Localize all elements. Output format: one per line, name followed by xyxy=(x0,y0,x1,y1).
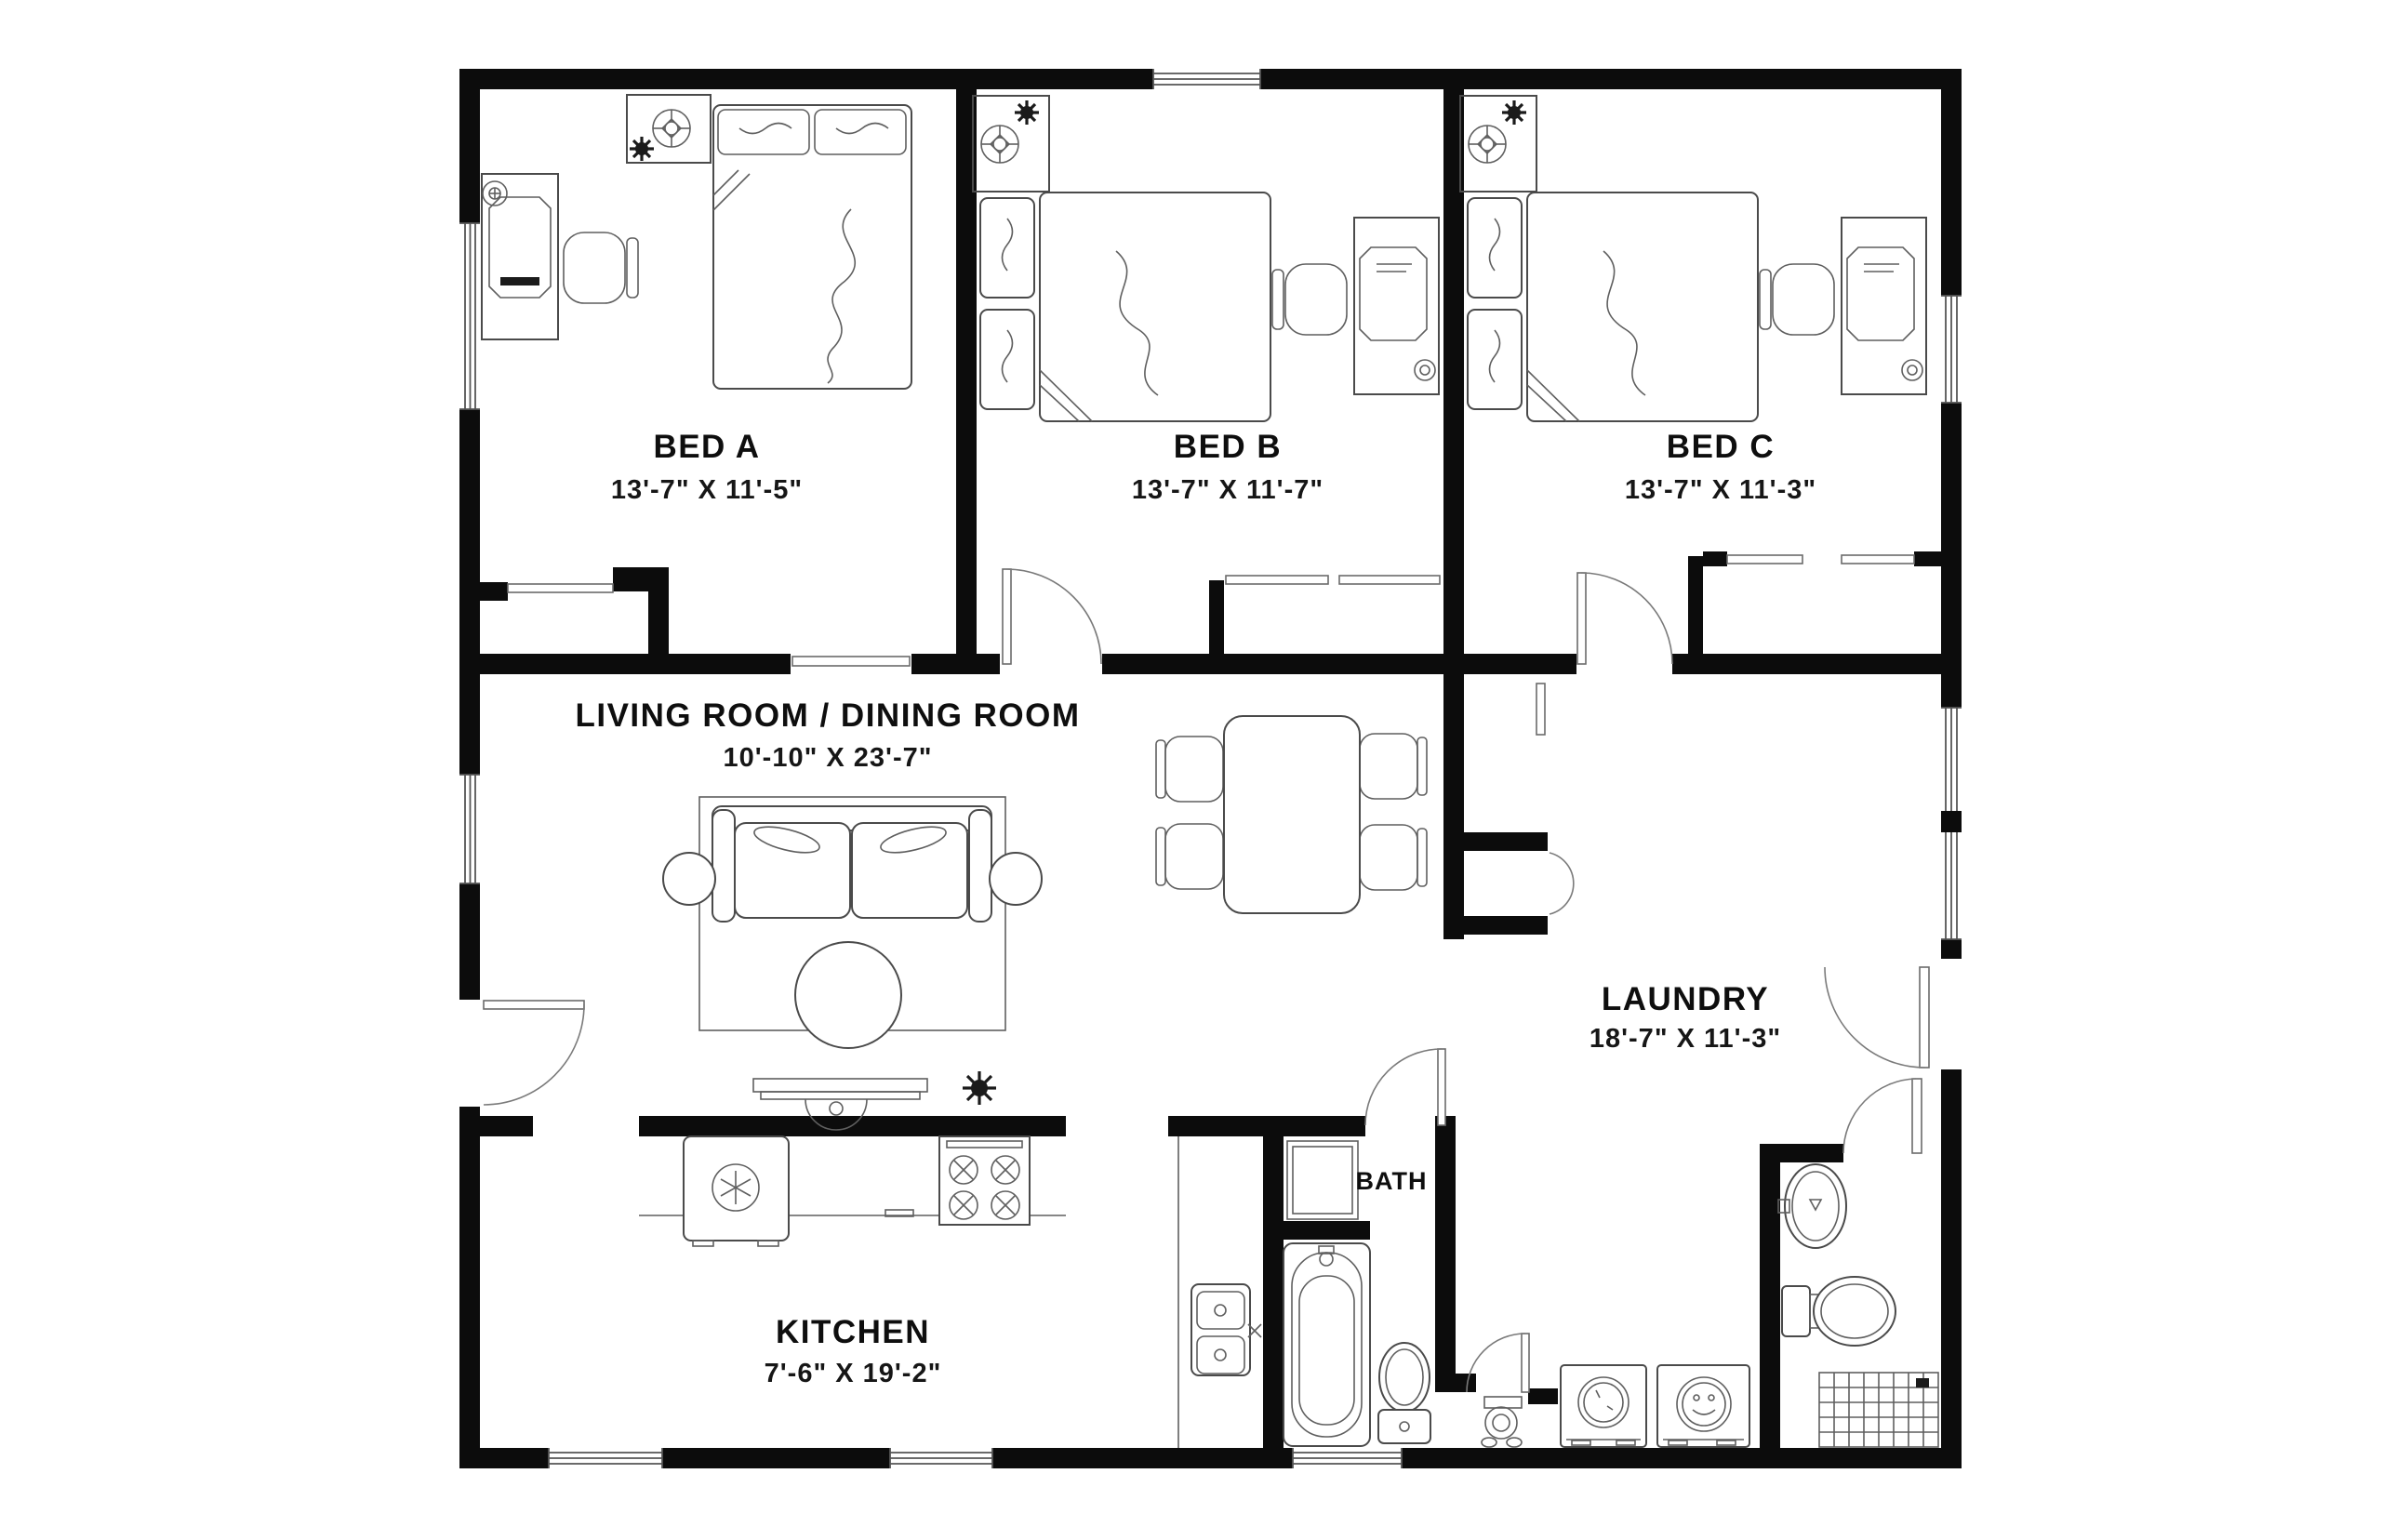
doors xyxy=(484,555,1929,1392)
laundry-bath-door-swing xyxy=(1843,1079,1922,1153)
toilet-icon xyxy=(1782,1277,1895,1346)
dining-chair xyxy=(1360,825,1427,890)
ceiling-fan-icon xyxy=(653,110,690,147)
closet-slider xyxy=(1727,555,1802,564)
washer-icon xyxy=(1561,1365,1646,1447)
pedestal-sink-icon xyxy=(1482,1397,1522,1447)
bath-door-swing xyxy=(1365,1049,1445,1125)
room-label-bed-c: BED C xyxy=(1667,429,1775,465)
room-dims-living: 10'-10" X 23'-7" xyxy=(724,743,933,773)
refrigerator-icon xyxy=(684,1136,789,1246)
laundry-bathroom-fixtures xyxy=(1778,1164,1938,1447)
side-table xyxy=(990,853,1042,905)
tiled-shower xyxy=(1819,1373,1938,1447)
pillow xyxy=(1468,310,1522,409)
shower-drain xyxy=(1916,1378,1929,1387)
bed-c-door-swing xyxy=(1577,573,1672,664)
tv-icon xyxy=(1360,247,1427,340)
room-label-bed-a: BED A xyxy=(653,429,760,465)
window-icon xyxy=(549,1448,662,1468)
window-icon xyxy=(459,775,480,883)
sofa xyxy=(712,806,991,922)
plant-icon xyxy=(1502,100,1526,125)
kitchen-fixtures xyxy=(639,1136,1261,1448)
plant-icon xyxy=(1015,100,1039,125)
laundry-fixtures xyxy=(1561,1365,1749,1447)
room-dims-bed-c: 13'-7" X 11'-3" xyxy=(1625,475,1816,505)
plant-icon xyxy=(630,137,654,161)
hall-closet-door-swing xyxy=(1550,853,1574,914)
dryer-icon xyxy=(1657,1365,1749,1447)
bed-a-sliding-door xyxy=(792,657,910,666)
plant-icon xyxy=(963,1071,996,1105)
window-icon xyxy=(890,1448,992,1468)
closet-slider xyxy=(1339,576,1440,584)
bed xyxy=(713,105,911,389)
pillow xyxy=(980,198,1034,298)
bathtub-icon xyxy=(1284,1243,1370,1446)
pillow xyxy=(980,310,1034,409)
bed xyxy=(1468,192,1758,421)
room-dims-bed-a: 13'-7" X 11'-5" xyxy=(611,475,803,505)
closet-slider xyxy=(1226,576,1328,584)
window-icon xyxy=(1153,69,1260,89)
window-icon xyxy=(459,223,480,409)
dining-set xyxy=(1156,716,1427,913)
back-door-swing xyxy=(1825,967,1929,1068)
closet-slider xyxy=(508,584,613,592)
window-icon xyxy=(1941,708,1962,811)
room-label-laundry: LAUNDRY xyxy=(1602,981,1769,1017)
room-label-living: LIVING ROOM / DINING ROOM xyxy=(575,697,1080,734)
room-label-kitchen: KITCHEN xyxy=(776,1314,930,1350)
ceiling-fan-icon xyxy=(981,126,1018,163)
entry-door-swing xyxy=(484,1001,584,1105)
bed xyxy=(980,192,1270,421)
room-label-bed-b: BED B xyxy=(1174,429,1282,465)
closet-slider xyxy=(1842,555,1914,564)
window-icon xyxy=(1941,832,1962,939)
tv-icon xyxy=(1847,247,1914,340)
pillow xyxy=(1468,198,1522,298)
ottoman xyxy=(795,942,901,1048)
dining-table xyxy=(1224,716,1360,913)
mug-icon xyxy=(1902,360,1922,380)
bed-b-door-swing xyxy=(1003,569,1101,664)
oval-sink-icon xyxy=(1778,1164,1846,1248)
bed-c-furniture xyxy=(1460,96,1926,421)
floor-plan: BED A 13'-7" X 11'-5" BED B 13'-7" X 11'… xyxy=(0,0,2381,1540)
living-room-furniture xyxy=(663,716,1427,1130)
mug-icon xyxy=(1415,360,1435,380)
kitchen-sink-icon xyxy=(1191,1284,1261,1375)
dining-chair xyxy=(1156,824,1223,889)
room-dims-laundry: 18'-7" X 11'-3" xyxy=(1590,1024,1781,1054)
chair xyxy=(1272,264,1347,335)
powder-door-swing xyxy=(1467,1334,1529,1392)
closet-slider xyxy=(1536,684,1545,735)
toilet-icon xyxy=(1378,1343,1430,1443)
side-table xyxy=(663,853,715,905)
bed-b-furniture xyxy=(973,96,1439,421)
dining-chair xyxy=(1360,734,1427,799)
room-label-bath: BATH xyxy=(1356,1167,1428,1195)
tv-icon xyxy=(489,197,551,298)
chair xyxy=(564,232,638,303)
chair xyxy=(1760,264,1834,335)
floor-plan-svg: BED A 13'-7" X 11'-5" BED B 13'-7" X 11'… xyxy=(0,0,2381,1540)
dining-chair xyxy=(1156,737,1223,802)
room-dims-kitchen: 7'-6" X 19'-2" xyxy=(765,1359,942,1388)
window-icon xyxy=(1941,296,1962,403)
ceiling-fan-icon xyxy=(1469,126,1506,163)
window-icon xyxy=(1293,1448,1402,1468)
bed-a-furniture xyxy=(482,95,911,389)
shower-stall xyxy=(1287,1141,1358,1219)
room-dims-bed-b: 13'-7" X 11'-7" xyxy=(1132,475,1324,505)
range-stove-icon xyxy=(939,1136,1030,1225)
